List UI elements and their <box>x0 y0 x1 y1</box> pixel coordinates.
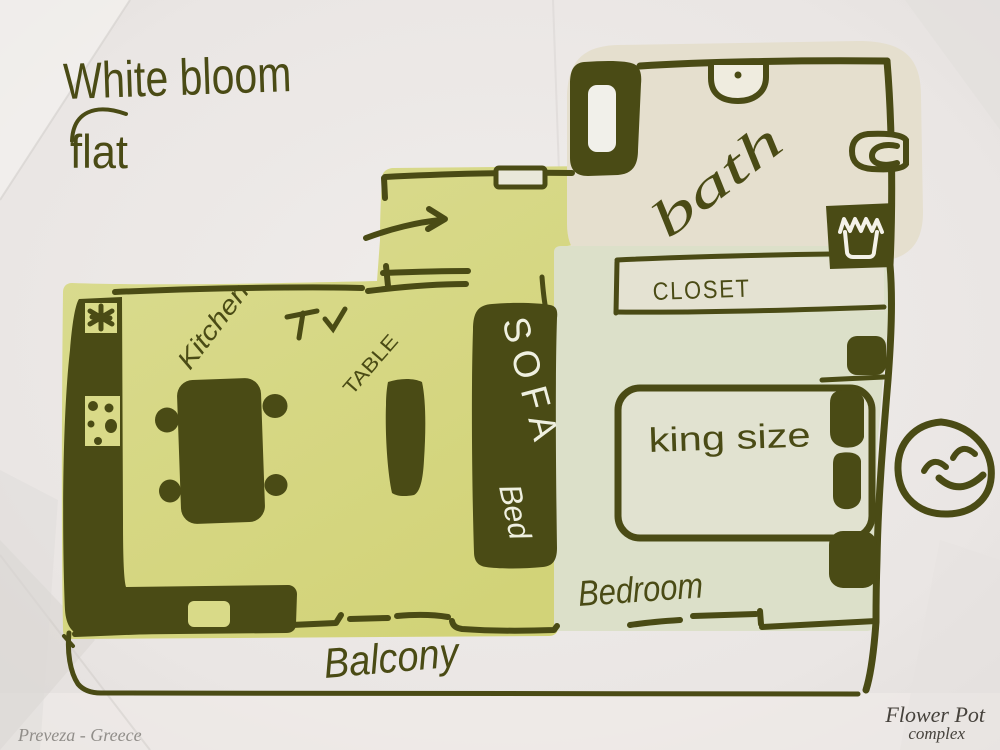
svg-text:flat: flat <box>70 125 128 178</box>
svg-text:Preveza - Greece: Preveza - Greece <box>17 725 142 745</box>
svg-text:king size: king size <box>648 416 811 460</box>
svg-text:White bloom: White bloom <box>62 45 292 110</box>
svg-text:complex: complex <box>908 724 965 743</box>
svg-text:Bedroom: Bedroom <box>577 564 705 614</box>
svg-text:CLOSET: CLOSET <box>652 275 751 306</box>
